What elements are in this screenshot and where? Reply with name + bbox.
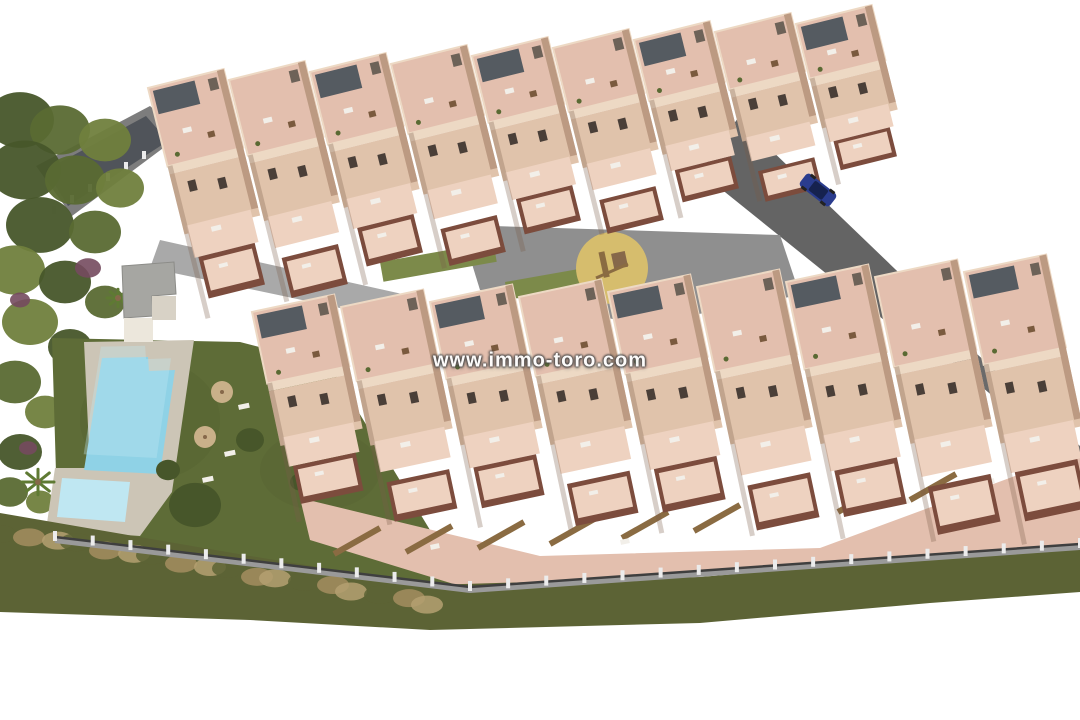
fence-post [697, 565, 701, 575]
fence-post [887, 551, 891, 561]
architectural-render: www.immo-toro.com [0, 0, 1080, 720]
fence-post [317, 563, 321, 573]
fence-post [355, 567, 359, 577]
fence-post [393, 572, 397, 582]
fence-post [166, 545, 170, 555]
fence-post [849, 554, 853, 564]
fence-post [773, 560, 777, 570]
fence-post [128, 540, 132, 550]
fence-post [506, 578, 510, 588]
fence-post [1002, 543, 1006, 553]
fence-post [582, 573, 586, 583]
fence-post [964, 546, 968, 556]
fence-post [735, 562, 739, 572]
fence-post [279, 558, 283, 568]
fence-post [53, 531, 57, 541]
fence-post [430, 576, 434, 586]
fence-post [1040, 541, 1044, 551]
fence-post [926, 549, 930, 559]
fence-post [811, 557, 815, 567]
render-canvas [0, 0, 1080, 720]
fence-post [544, 576, 548, 586]
fence-post [204, 549, 208, 559]
fence-post [91, 536, 95, 546]
fence-post [659, 568, 663, 578]
fence-post [621, 570, 625, 580]
fence-post [468, 581, 472, 591]
fence-post [242, 554, 246, 564]
